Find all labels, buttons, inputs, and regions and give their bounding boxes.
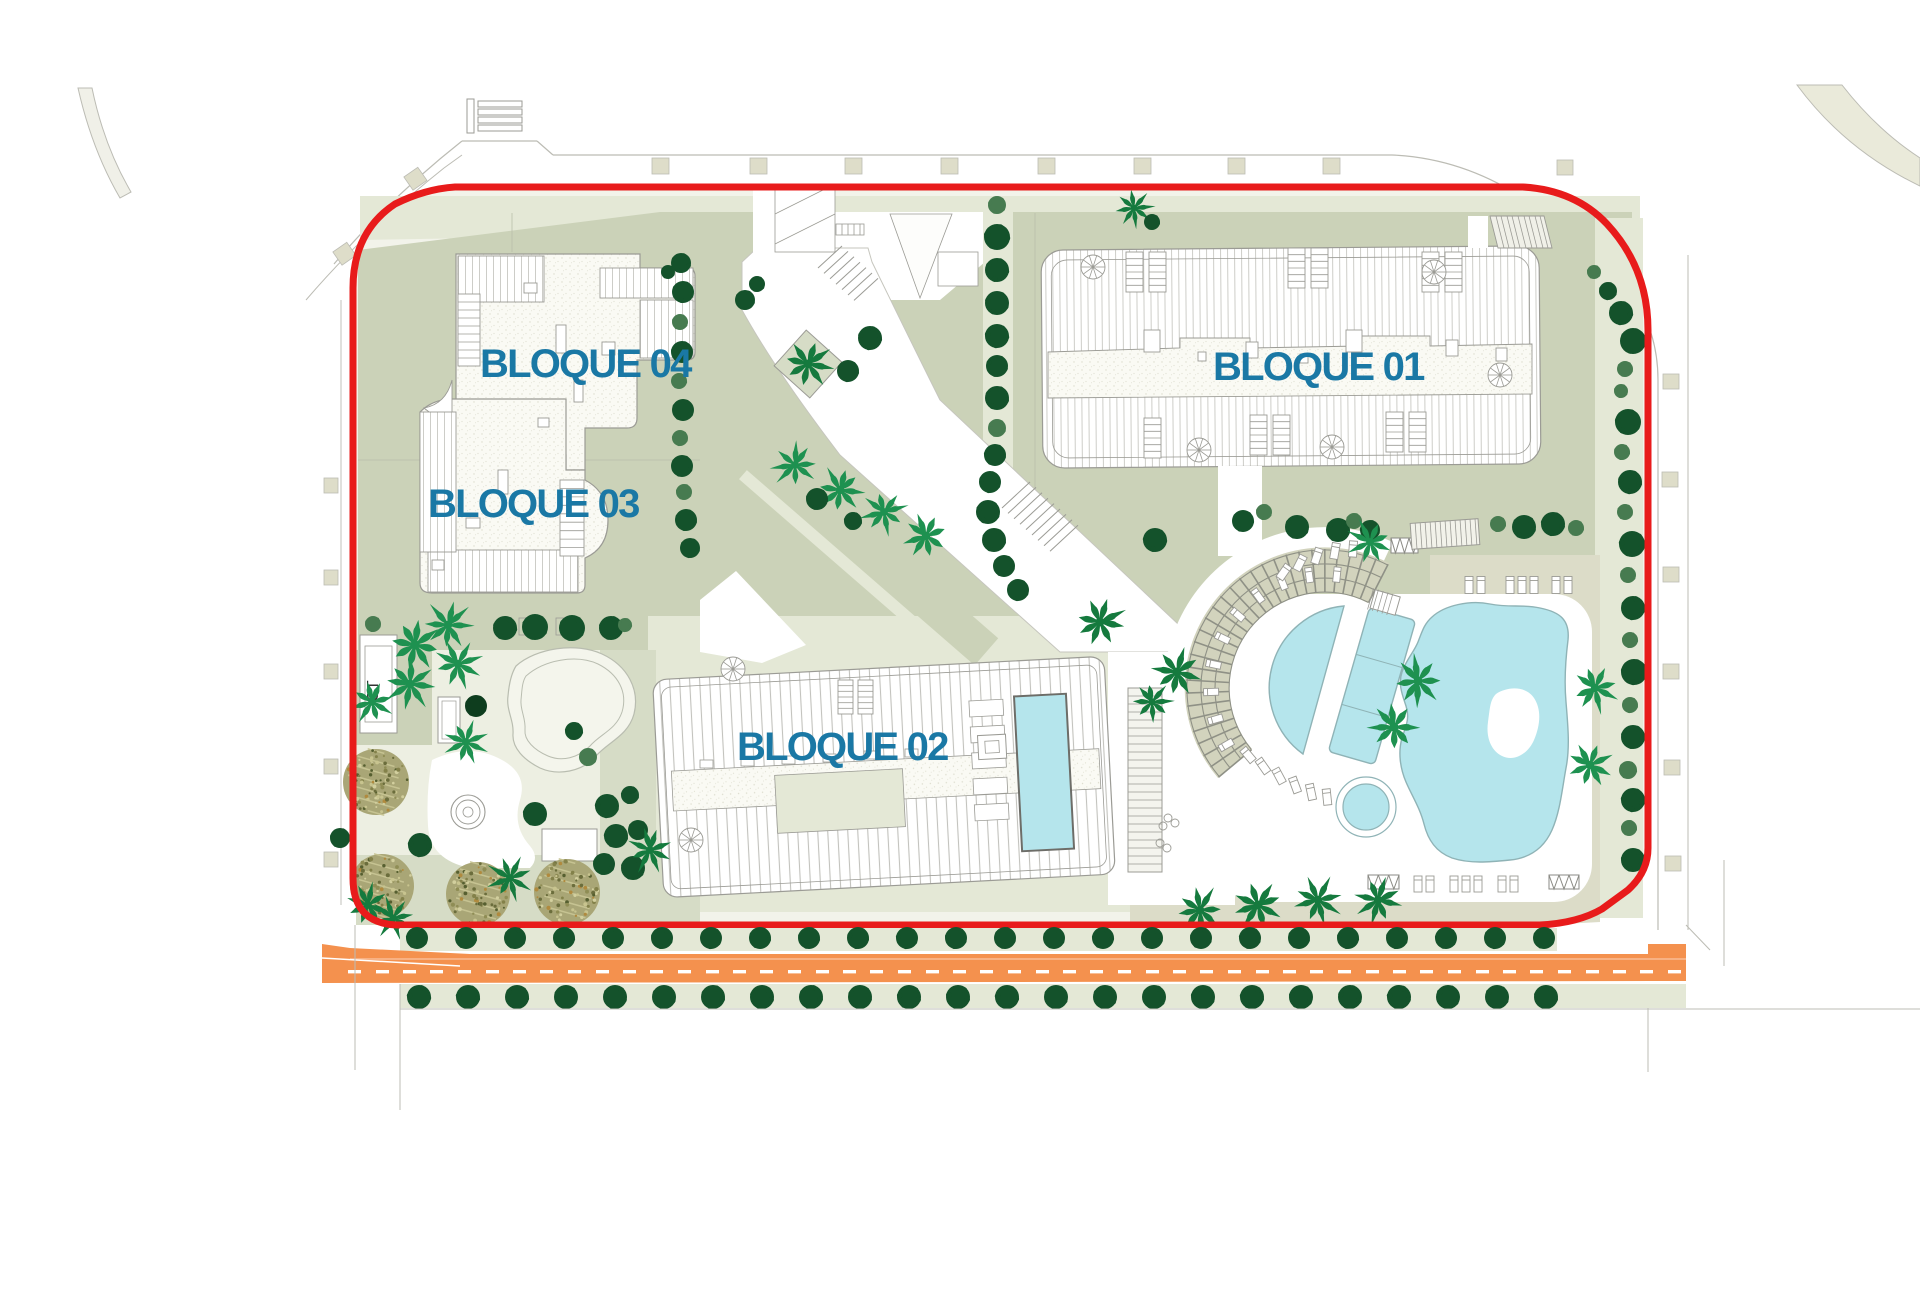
svg-text:BLOQUE 01: BLOQUE 01 [1213,345,1425,389]
svg-text:BLOQUE 04: BLOQUE 04 [480,342,693,386]
svg-text:BLOQUE 02: BLOQUE 02 [737,725,948,769]
svg-text:BLOQUE 03: BLOQUE 03 [428,482,639,526]
